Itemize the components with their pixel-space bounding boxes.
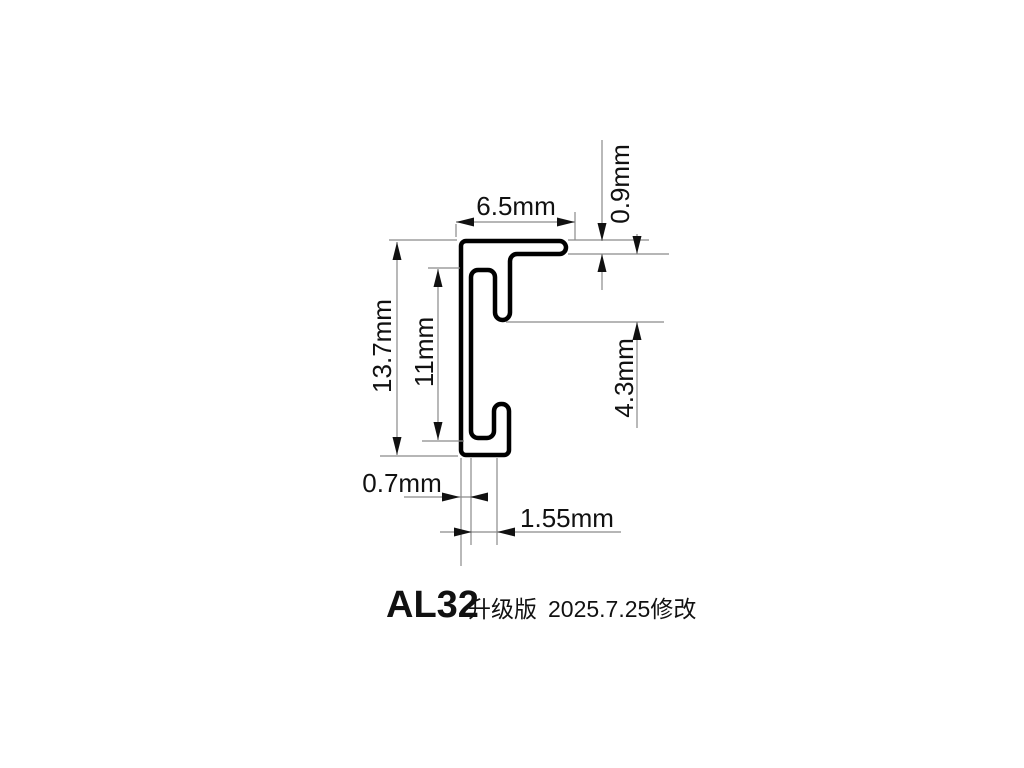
arrowhead-top: [434, 269, 443, 287]
profile-cross-section: [461, 241, 566, 455]
drawing-canvas: 6.5mm 13.7mm 11mm 0.9mm 4.3mm 0.7mm: [0, 0, 1024, 768]
dimension-label-bottom-slot-width: 1.55mm: [520, 503, 614, 533]
dim-top-width: 6.5mm: [456, 191, 575, 227]
dimension-label-overall-height: 13.7mm: [367, 299, 397, 393]
arrowhead-bottom: [393, 437, 402, 455]
dim-overall-height: 13.7mm: [367, 242, 402, 455]
dimension-label-top-width: 6.5mm: [476, 191, 555, 221]
arrowhead-right: [442, 493, 460, 502]
arrowhead-down: [598, 223, 607, 241]
dimension-label-right-depth: 4.3mm: [609, 338, 639, 417]
dimension-label-flange-thickness: 0.9mm: [605, 144, 635, 223]
dim-wall-thickness: 0.7mm: [362, 468, 488, 502]
technical-drawing: 6.5mm 13.7mm 11mm 0.9mm 4.3mm 0.7mm: [0, 0, 1024, 768]
arrowhead-bottom: [434, 422, 443, 440]
title-block: AL32 升级版 2025.7.25修改: [386, 584, 696, 626]
part-number: AL32: [386, 584, 479, 626]
arrowhead-up: [598, 254, 607, 272]
arrowhead-left: [497, 528, 515, 537]
part-edition: 升级版: [468, 596, 537, 622]
arrowhead-top: [393, 242, 402, 260]
dimension-label-inner-height: 11mm: [409, 317, 439, 387]
dim-bottom-slot-width: 1.55mm: [440, 503, 621, 537]
arrowhead-right: [557, 218, 575, 227]
arrowhead-down: [633, 236, 642, 254]
dimension-label-wall-thickness: 0.7mm: [362, 468, 441, 498]
arrowhead-right: [454, 528, 472, 537]
dim-inner-height: 11mm: [409, 269, 443, 440]
arrowhead-left: [470, 493, 488, 502]
dim-flange-thickness: 0.9mm: [598, 140, 636, 290]
revision-date: 2025.7.25修改: [548, 596, 696, 622]
arrowhead-up: [633, 322, 642, 340]
dim-right-depth: 4.3mm: [609, 234, 642, 428]
arrowhead-left: [456, 218, 474, 227]
profile-outline: [461, 241, 566, 455]
